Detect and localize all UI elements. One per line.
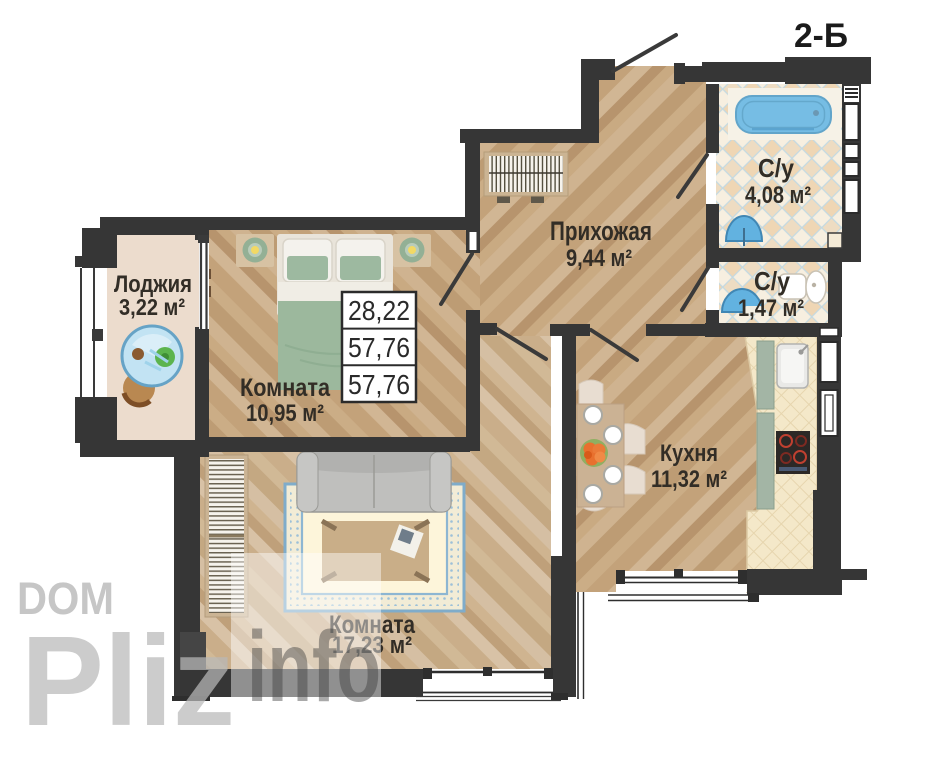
svg-text:Комната: Комната bbox=[240, 374, 331, 402]
svg-text:Прихожая: Прихожая bbox=[550, 216, 652, 246]
svg-text:57,76: 57,76 bbox=[348, 369, 410, 400]
svg-text:4,08 м²: 4,08 м² bbox=[745, 182, 811, 209]
svg-text:1,47 м²: 1,47 м² bbox=[738, 295, 804, 322]
svg-text:info: info bbox=[247, 611, 381, 723]
svg-text:3,22 м²: 3,22 м² bbox=[119, 294, 185, 320]
svg-text:11,32 м²: 11,32 м² bbox=[651, 466, 727, 493]
svg-text:Кухня: Кухня bbox=[660, 440, 718, 467]
svg-text:9,44 м²: 9,44 м² bbox=[566, 245, 632, 272]
svg-text:Pliz: Pliz bbox=[21, 610, 235, 753]
svg-text:57,76: 57,76 bbox=[348, 332, 410, 363]
svg-text:2-Б: 2-Б bbox=[794, 17, 848, 55]
svg-text:10,95 м²: 10,95 м² bbox=[246, 400, 324, 427]
svg-text:С/у: С/у bbox=[758, 153, 794, 183]
svg-text:С/у: С/у bbox=[754, 266, 790, 296]
svg-text:28,22: 28,22 bbox=[348, 295, 410, 326]
